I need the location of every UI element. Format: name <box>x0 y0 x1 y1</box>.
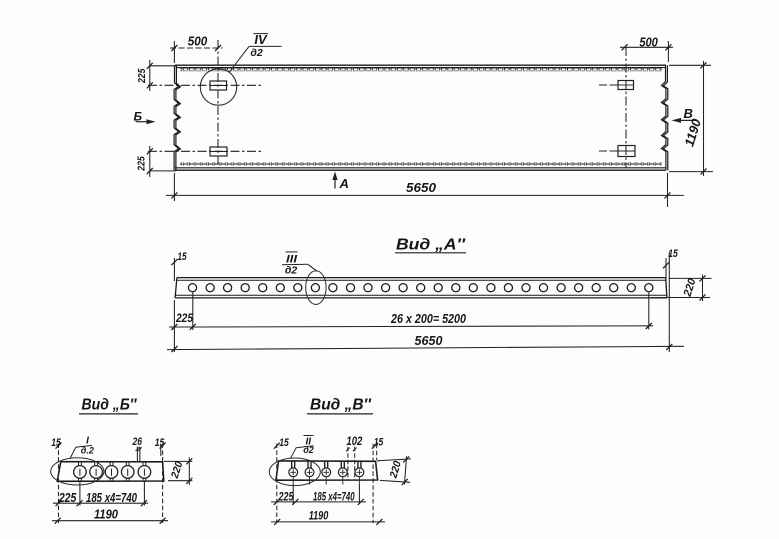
svg-text:500: 500 <box>188 34 208 49</box>
svg-text:102: 102 <box>346 436 363 448</box>
svg-text:д2: д2 <box>303 445 314 455</box>
svg-text:26 х 200= 5200: 26 х 200= 5200 <box>390 312 466 326</box>
svg-text:1190: 1190 <box>94 508 118 522</box>
svg-text:IV: IV <box>254 32 268 47</box>
svg-text:5650: 5650 <box>415 334 443 348</box>
svg-text:1190: 1190 <box>309 511 329 523</box>
svg-text:15: 15 <box>279 437 289 449</box>
svg-text:26: 26 <box>132 436 143 448</box>
svg-text:185 х4=740: 185 х4=740 <box>313 491 355 503</box>
svg-text:15: 15 <box>177 251 187 263</box>
svg-text:15: 15 <box>374 437 384 449</box>
svg-text:225: 225 <box>136 68 148 83</box>
svg-text:А: А <box>339 176 349 191</box>
svg-text:д2: д2 <box>250 47 262 59</box>
svg-text:15: 15 <box>155 437 165 449</box>
svg-text:Вид „В″: Вид „В″ <box>310 397 372 414</box>
svg-text:5650: 5650 <box>406 180 437 195</box>
svg-text:185 х4=740: 185 х4=740 <box>86 491 137 505</box>
svg-text:225: 225 <box>58 491 77 505</box>
svg-text:225: 225 <box>175 311 193 325</box>
svg-text:Вид „Б″: Вид „Б″ <box>82 397 138 414</box>
svg-text:225: 225 <box>278 489 294 503</box>
svg-text:III: III <box>286 253 298 265</box>
svg-text:Вид „А″: Вид „А″ <box>396 237 466 254</box>
svg-text:500: 500 <box>639 35 658 50</box>
svg-text:д.2: д.2 <box>81 446 94 456</box>
svg-text:15: 15 <box>51 437 61 449</box>
svg-text:д2: д2 <box>285 265 297 277</box>
svg-text:225: 225 <box>136 156 148 171</box>
